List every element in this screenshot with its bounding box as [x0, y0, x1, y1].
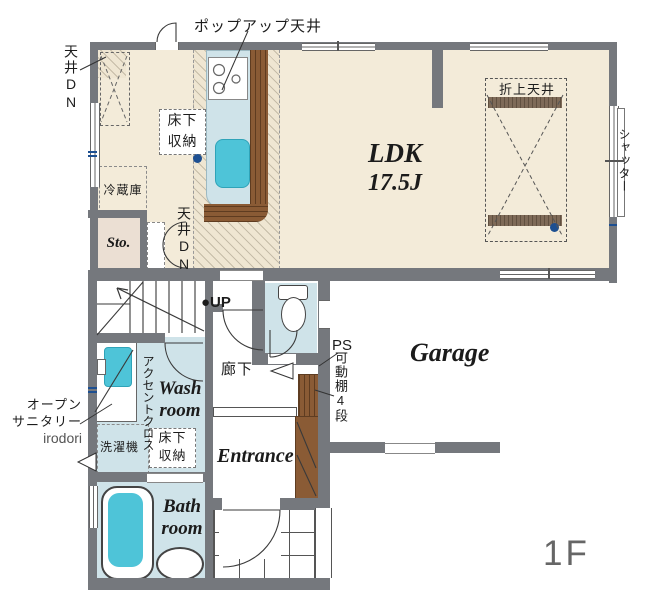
storage-label: Sto. — [107, 235, 131, 252]
wall-stub-top — [432, 50, 443, 108]
marker-tick-right-wall — [609, 224, 617, 226]
wall-wash-divider — [205, 337, 213, 578]
closet-shelf — [147, 222, 165, 270]
ldk-size: 17.5J — [350, 168, 440, 198]
garage-label: Garage — [410, 338, 489, 368]
porch-side-opening — [315, 508, 332, 578]
marker-dot-ldk — [550, 223, 559, 232]
window-top-a-tick — [337, 41, 339, 51]
corner-cross-box — [100, 52, 130, 126]
bathtub-water — [108, 493, 143, 567]
floor-label: 1F — [543, 534, 590, 574]
wall-garage-stub-b — [435, 442, 500, 453]
underfloor-storage-wash-l1: 床下 — [158, 430, 186, 445]
toilet-bowl — [281, 297, 306, 332]
wall-wash-top — [97, 333, 165, 343]
bath-room-label: Bath room — [153, 496, 211, 540]
wash-room-l1: Wash — [152, 378, 208, 400]
bath-washing-area — [156, 547, 204, 581]
ldk-label: LDK 17.5J — [350, 138, 440, 198]
underfloor-storage-wash-l2: 収納 — [158, 448, 186, 463]
kitchen-counter-wood-side — [250, 50, 268, 208]
wall-bottom — [88, 578, 330, 590]
bath-room-l2: room — [153, 518, 211, 540]
entrance-label: Entrance — [217, 445, 294, 468]
hall-ldk-opening — [220, 270, 263, 281]
toilet-door-opening — [268, 354, 296, 364]
stove — [208, 57, 248, 100]
refrigerator-box: 冷蔵庫 — [99, 166, 147, 213]
wash-room-label: Wash room — [152, 378, 208, 422]
washing-machine-label: 洗濯機 — [100, 438, 145, 455]
vanity-sink — [104, 347, 132, 387]
coffered-ceiling-label: 折上天井 — [494, 79, 560, 98]
wall-garage-stub-a — [330, 442, 385, 453]
kitchen-door-opening — [155, 42, 179, 50]
movable-shelf — [298, 374, 320, 418]
hallway-label: 廊下 — [221, 358, 253, 379]
marker-tick-wash-window-1 — [88, 387, 97, 389]
ldk-name: LDK — [350, 138, 440, 168]
wall-sto-top — [88, 210, 147, 218]
marker-dot-kitchen — [193, 154, 202, 163]
movable-shelf-label: 可動棚4段 — [334, 351, 347, 423]
open-sanitary-l1: オープン — [27, 397, 82, 412]
underfloor-storage-kitchen-l2: 収納 — [168, 133, 198, 149]
window-ldk-south-tick — [548, 268, 550, 279]
bath-room-l1: Bath — [153, 496, 211, 518]
bath-door-opening — [147, 473, 203, 483]
wash-room-l2: room — [152, 400, 208, 422]
coffered-beam-top — [488, 97, 562, 108]
vanity-faucet — [97, 359, 106, 375]
window-top-b — [470, 43, 548, 51]
marker-tick-wash-window-2 — [88, 391, 97, 393]
entrance-step — [213, 407, 297, 417]
open-sanitary-l2: サニタリー — [12, 414, 82, 429]
ceiling-down-left-label: 天井DN — [64, 44, 78, 112]
marker-tick-kitchen-window-1 — [88, 151, 97, 153]
porch-door-opening — [222, 498, 280, 510]
underfloor-storage-kitchen-l1: 床下 — [168, 112, 198, 128]
underfloor-storage-wash: 床下 収納 — [149, 428, 196, 468]
window-left-kitchen — [90, 103, 100, 187]
shutter-label: シャッター — [618, 128, 630, 193]
window-toilet — [319, 300, 330, 329]
wall-left-lower — [88, 270, 97, 590]
refrigerator-label: 冷蔵庫 — [103, 181, 142, 198]
kitchen-sink — [215, 139, 250, 188]
popup-ceiling-label: ポップアップ天井 — [194, 15, 334, 36]
shoe-cabinet — [295, 416, 320, 502]
underfloor-storage-kitchen: 床下 収納 — [159, 109, 206, 155]
wall-sto-right — [140, 218, 147, 270]
open-sanitary-label: オープン サニタリー irodori — [10, 396, 82, 447]
storage-room: Sto. — [97, 218, 140, 268]
porch-door-swing-area — [219, 509, 281, 559]
open-sanitary-l3: irodori — [43, 430, 82, 446]
ceiling-down-kitchen-label: 天井DN — [177, 206, 191, 274]
window-bath — [89, 486, 98, 528]
floor-plan-1f: 冷蔵庫 Sto. 床下 収納 折上天井 洗濯機 床下 収納 — [0, 0, 645, 603]
kitchen-counter-wood-front — [204, 204, 268, 222]
garage-stub-opening — [385, 443, 435, 454]
marker-tick-kitchen-window-2 — [88, 155, 97, 157]
stairs-up-label: ●UP — [201, 294, 231, 311]
kitchen-door-arc — [157, 23, 176, 42]
